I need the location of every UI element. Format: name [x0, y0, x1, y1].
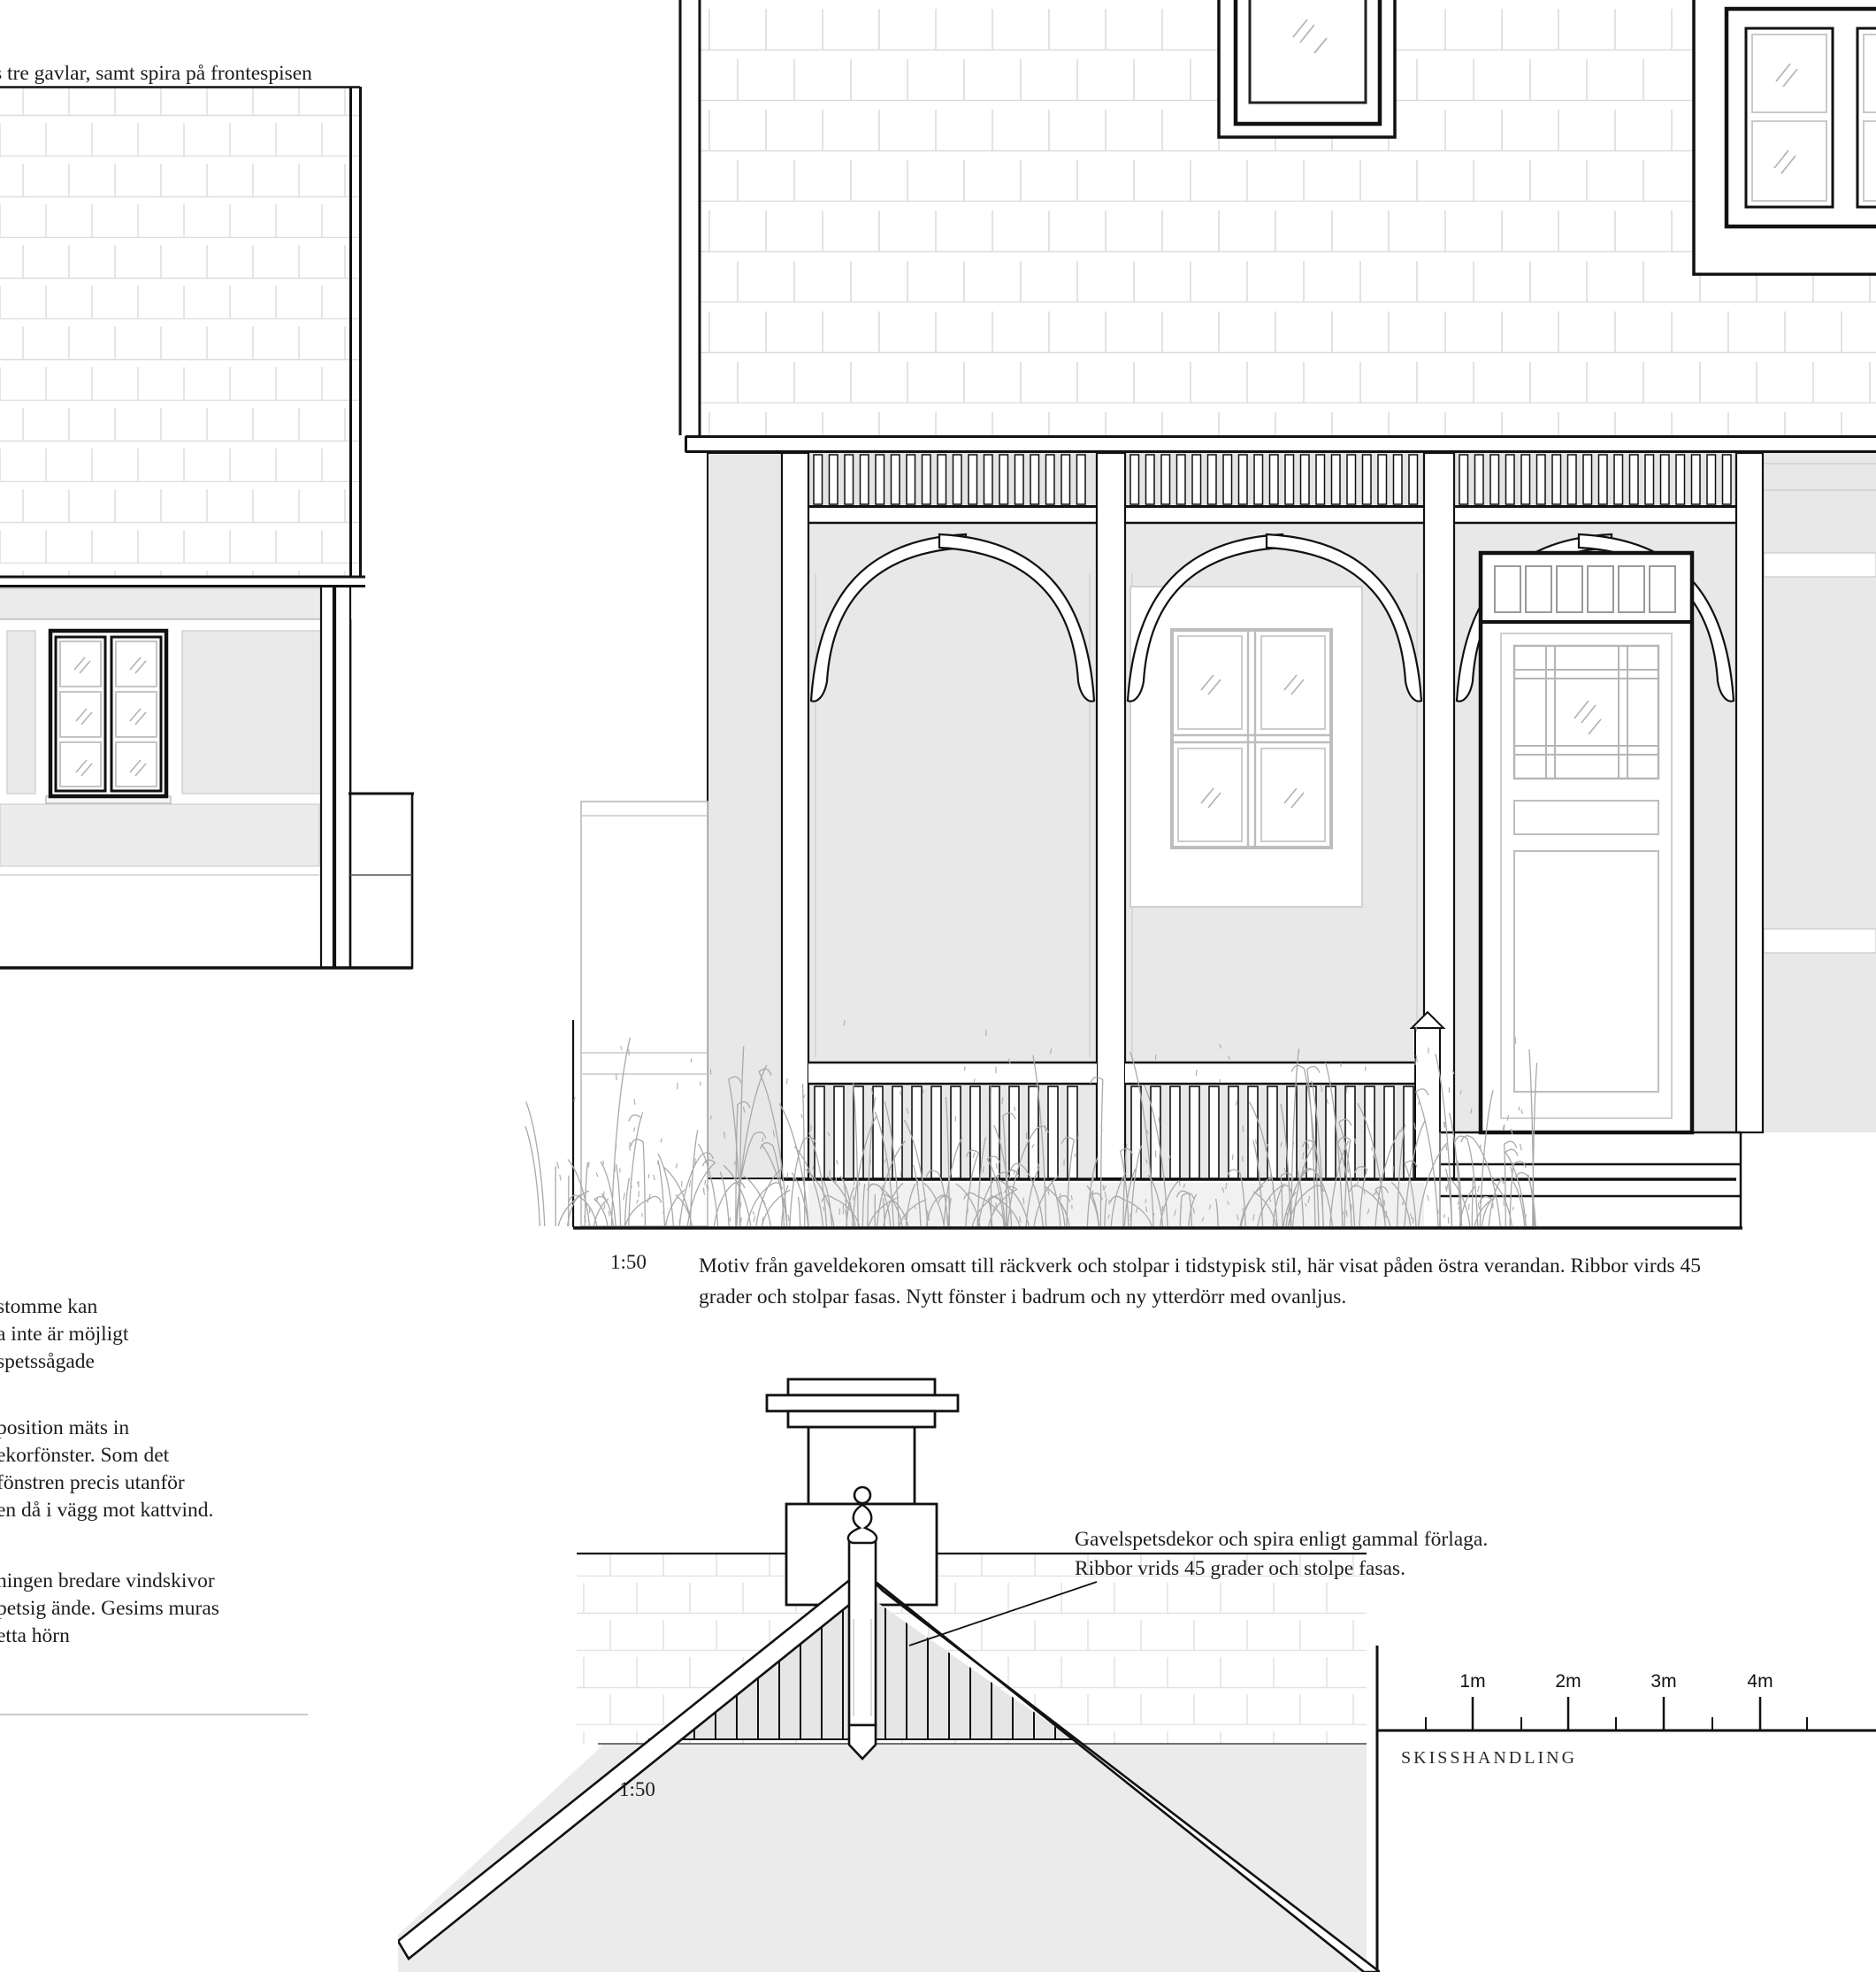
note-line: spetssågade [0, 1348, 128, 1376]
side-note-1: stomme kana inte är möjligtspetssågade [0, 1293, 128, 1376]
veranda-caption: 1:50 Motiv från gaveldekoren omsatt till… [610, 1251, 1701, 1313]
minor-ticks [1426, 1717, 1807, 1730]
note-line: ningen bredare vindskivor [0, 1568, 219, 1595]
tick-label-2m: 2m [1555, 1671, 1581, 1692]
note-line: ekorfönster. Som det [0, 1442, 213, 1469]
scale-bar: 1m 2m 3m 4m [1371, 1641, 1876, 1972]
entry-door [1481, 553, 1692, 1132]
left-house-window [46, 631, 171, 803]
dormer-window-right [1694, 0, 1876, 274]
divider-line [0, 1714, 308, 1715]
annotation-line: Gavelspetsdekor och spira enligt gammal … [1075, 1525, 1488, 1554]
gable-scale-label: 1:50 [619, 1778, 655, 1801]
veranda-elevation [398, 0, 1876, 1234]
gable-wall-strip [708, 453, 782, 1178]
frieze-rail [808, 506, 1736, 524]
left-house-roof [0, 87, 365, 587]
annotation-line: Ribbor vrids 45 grader och stolpe fasas. [1075, 1554, 1488, 1584]
eave-fascia [685, 435, 1876, 453]
note-line: a inte är möjligt [0, 1321, 128, 1348]
frieze-ribs [808, 453, 1736, 506]
bathroom-window [1130, 587, 1362, 907]
gable-annotation: Gavelspetsdekor och spira enligt gammal … [1075, 1525, 1488, 1584]
title-block-label: SKISSHANDLING [1401, 1748, 1577, 1769]
caption-line: grader och stolpar fasas. Nytt fönster i… [699, 1282, 1701, 1313]
drawing-sheet: { "page": { "top_note": "s tre gavlar, s… [0, 0, 1876, 1972]
side-note-3: ningen bredare vindskivorpetsig ände. Ge… [0, 1568, 219, 1650]
veranda-scale-label: 1:50 [610, 1251, 699, 1274]
left-house-elevation [0, 75, 416, 973]
finial-ball [854, 1487, 870, 1503]
dormer-window-center [1219, 0, 1395, 137]
tick-label-3m: 3m [1650, 1671, 1676, 1692]
note-line: stomme kan [0, 1293, 128, 1321]
tick-label-4m: 4m [1747, 1671, 1773, 1692]
garden-wall [573, 802, 708, 1227]
side-note-2: position mäts inekorfönster. Som detföns… [0, 1415, 213, 1524]
tick-label-1m: 1m [1459, 1671, 1485, 1692]
note-line: fönstren precis utanför [0, 1469, 213, 1497]
veranda-caption-text: Motiv från gaveldekoren omsatt till räck… [699, 1251, 1701, 1313]
gable-spire-detail [398, 1354, 1380, 1972]
note-line: etta hörn [0, 1623, 219, 1650]
note-line: petsig ände. Gesims muras [0, 1595, 219, 1623]
right-wall [1763, 453, 1876, 1132]
caption-line: Motiv från gaveldekoren omsatt till räck… [699, 1251, 1701, 1282]
note-line: position mäts in [0, 1415, 213, 1442]
note-line: en då i vägg mot kattvind. [0, 1497, 213, 1524]
